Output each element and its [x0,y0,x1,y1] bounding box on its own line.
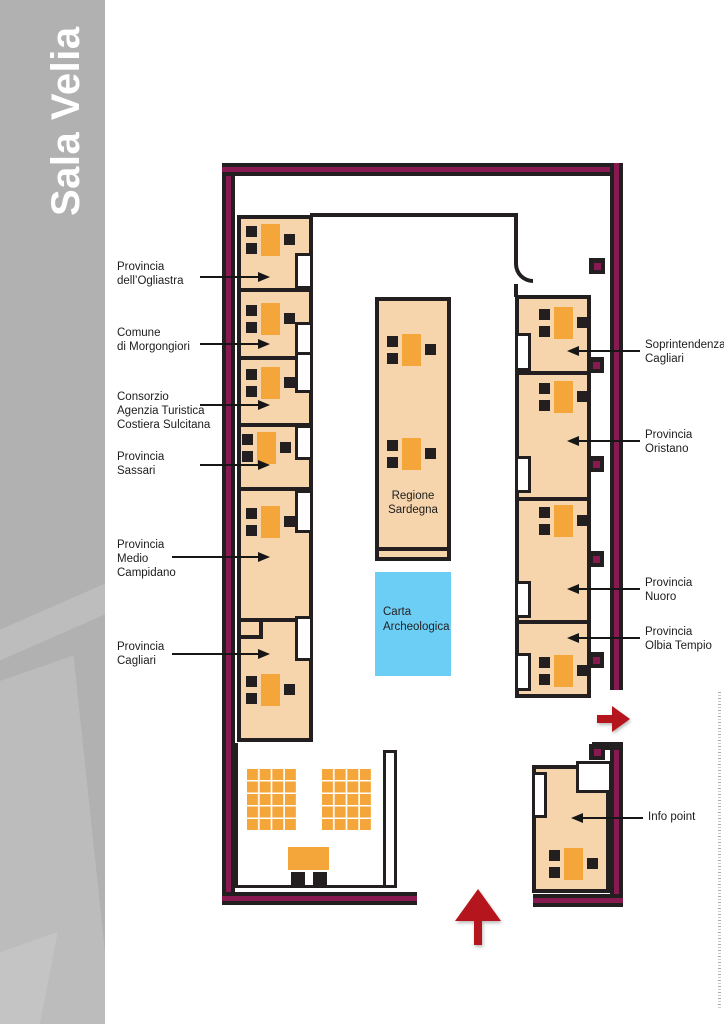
desk-icon [539,381,588,413]
wall-right-upper [610,163,623,690]
booth-partition [259,620,263,639]
audience-chairs-right [322,769,371,830]
desk-icon [387,334,436,366]
desk-icon [387,438,436,470]
speaker-table-icon [288,847,329,886]
callout-label-consorzio: Consorzio Agenzia Turistica Costiera Sul… [117,390,227,432]
page: Sala Velia [0,0,724,1024]
desk-icon [246,367,295,399]
callout-line [579,588,640,590]
booth-notch [576,761,612,793]
wall-top [222,163,623,176]
door-swing-arc [514,262,533,283]
desk-icon [246,674,295,706]
door-opening [295,425,313,460]
wall-bottom-left [222,892,417,905]
door-opening [515,653,531,691]
print-edge-artifact [718,692,721,1010]
callout-line [200,276,258,278]
column-marker [588,551,604,567]
seating-wall-left [235,743,238,888]
door-opening [515,333,531,371]
sidebar: Sala Velia [0,0,105,1024]
callout-label-provincia-sassari: Provincia Sassari [117,450,212,478]
wall-corridor-top [310,213,518,217]
callout-label-info-point: Info point [648,810,724,824]
regione-sardegna-label: Regione Sardegna [375,489,451,518]
callout-line [579,350,640,352]
callout-line [200,404,258,406]
callout-line [579,440,640,442]
door-opening [515,581,531,618]
booth-divider [379,547,447,551]
page-title: Sala Velia [44,26,89,216]
desk-icon [246,506,295,538]
exit-arrow-icon [612,706,630,732]
column-marker [589,258,605,274]
desk-icon [539,307,588,339]
carta-archeologica-label: Carta Archeologica [383,605,449,635]
wall-bottom-right [533,894,623,907]
callout-label-provincia-olbia-tempio: Provincia Olbia Tempio [645,625,724,653]
callout-line [172,653,258,655]
door-opening [295,253,313,289]
callout-line [579,637,640,639]
entrance-arrow-icon [455,889,501,921]
desk-icon [539,655,588,687]
desk-icon [246,224,295,256]
desk-icon [539,505,588,537]
callout-label-soprintendenza-cagliari: Soprintendenza Cagliari [645,338,724,366]
callout-line [200,464,258,466]
door-opening [295,616,313,661]
column-marker [588,652,604,668]
column-marker [588,357,604,373]
callout-label-provincia-dellogliastra: Provincia dell’Ogliastra [117,260,212,288]
callout-line [583,817,643,819]
callout-label-provincia-nuoro: Provincia Nuoro [645,576,724,604]
wall-left [222,163,235,905]
column-marker [589,744,605,760]
door-opening [532,772,547,818]
callout-label-provincia-oristano: Provincia Oristano [645,428,724,456]
callout-label-comune-di-morgongiori: Comune di Morgongiori [117,326,212,354]
column-marker [588,456,604,472]
desk-icon [246,303,295,335]
wall-corridor-side [514,213,518,262]
callout-label-provincia-medio-campidano: Provincia Medio Campidano [117,538,212,580]
seating-wall-right [383,750,397,888]
door-opening [515,456,531,493]
door-opening [295,490,313,533]
audience-chairs-left [247,769,296,830]
callout-line [172,556,258,558]
door-opening [295,352,313,393]
callout-line [200,343,258,345]
desk-icon [549,848,598,880]
